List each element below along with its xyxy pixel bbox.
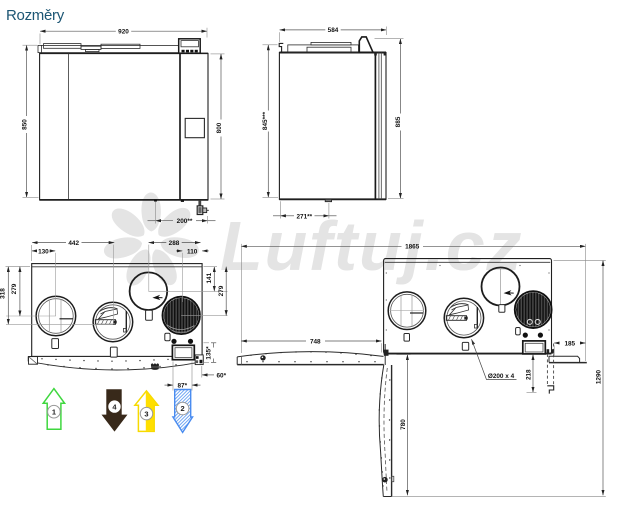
svg-text:141: 141	[206, 272, 213, 283]
svg-text:279: 279	[218, 285, 225, 296]
svg-text:87*: 87*	[177, 383, 187, 390]
svg-text:Ø200 x 4: Ø200 x 4	[488, 373, 515, 380]
svg-text:110: 110	[187, 248, 198, 255]
svg-text:185: 185	[564, 340, 575, 347]
svg-text:800: 800	[216, 122, 223, 133]
svg-text:1: 1	[52, 407, 56, 416]
svg-text:288: 288	[169, 240, 180, 247]
svg-text:279: 279	[11, 283, 18, 294]
svg-text:200**: 200**	[177, 218, 193, 225]
svg-text:885: 885	[395, 116, 402, 127]
svg-text:1865: 1865	[405, 244, 420, 251]
svg-text:60*: 60*	[217, 372, 227, 379]
svg-text:780: 780	[400, 419, 407, 430]
svg-text:318: 318	[0, 288, 6, 299]
svg-text:1290: 1290	[596, 369, 603, 384]
svg-text:748: 748	[310, 338, 321, 345]
svg-text:920: 920	[118, 29, 129, 36]
svg-text:442: 442	[68, 240, 79, 247]
svg-text:271**: 271**	[296, 213, 312, 220]
svg-text:850: 850	[22, 119, 29, 130]
svg-text:3: 3	[144, 409, 148, 418]
svg-text:584: 584	[328, 27, 339, 34]
svg-text:218: 218	[526, 369, 533, 380]
svg-text:135*: 135*	[206, 346, 213, 360]
svg-text:2: 2	[181, 404, 185, 413]
svg-text:845***: 845***	[262, 111, 269, 130]
svg-text:130: 130	[38, 248, 49, 255]
